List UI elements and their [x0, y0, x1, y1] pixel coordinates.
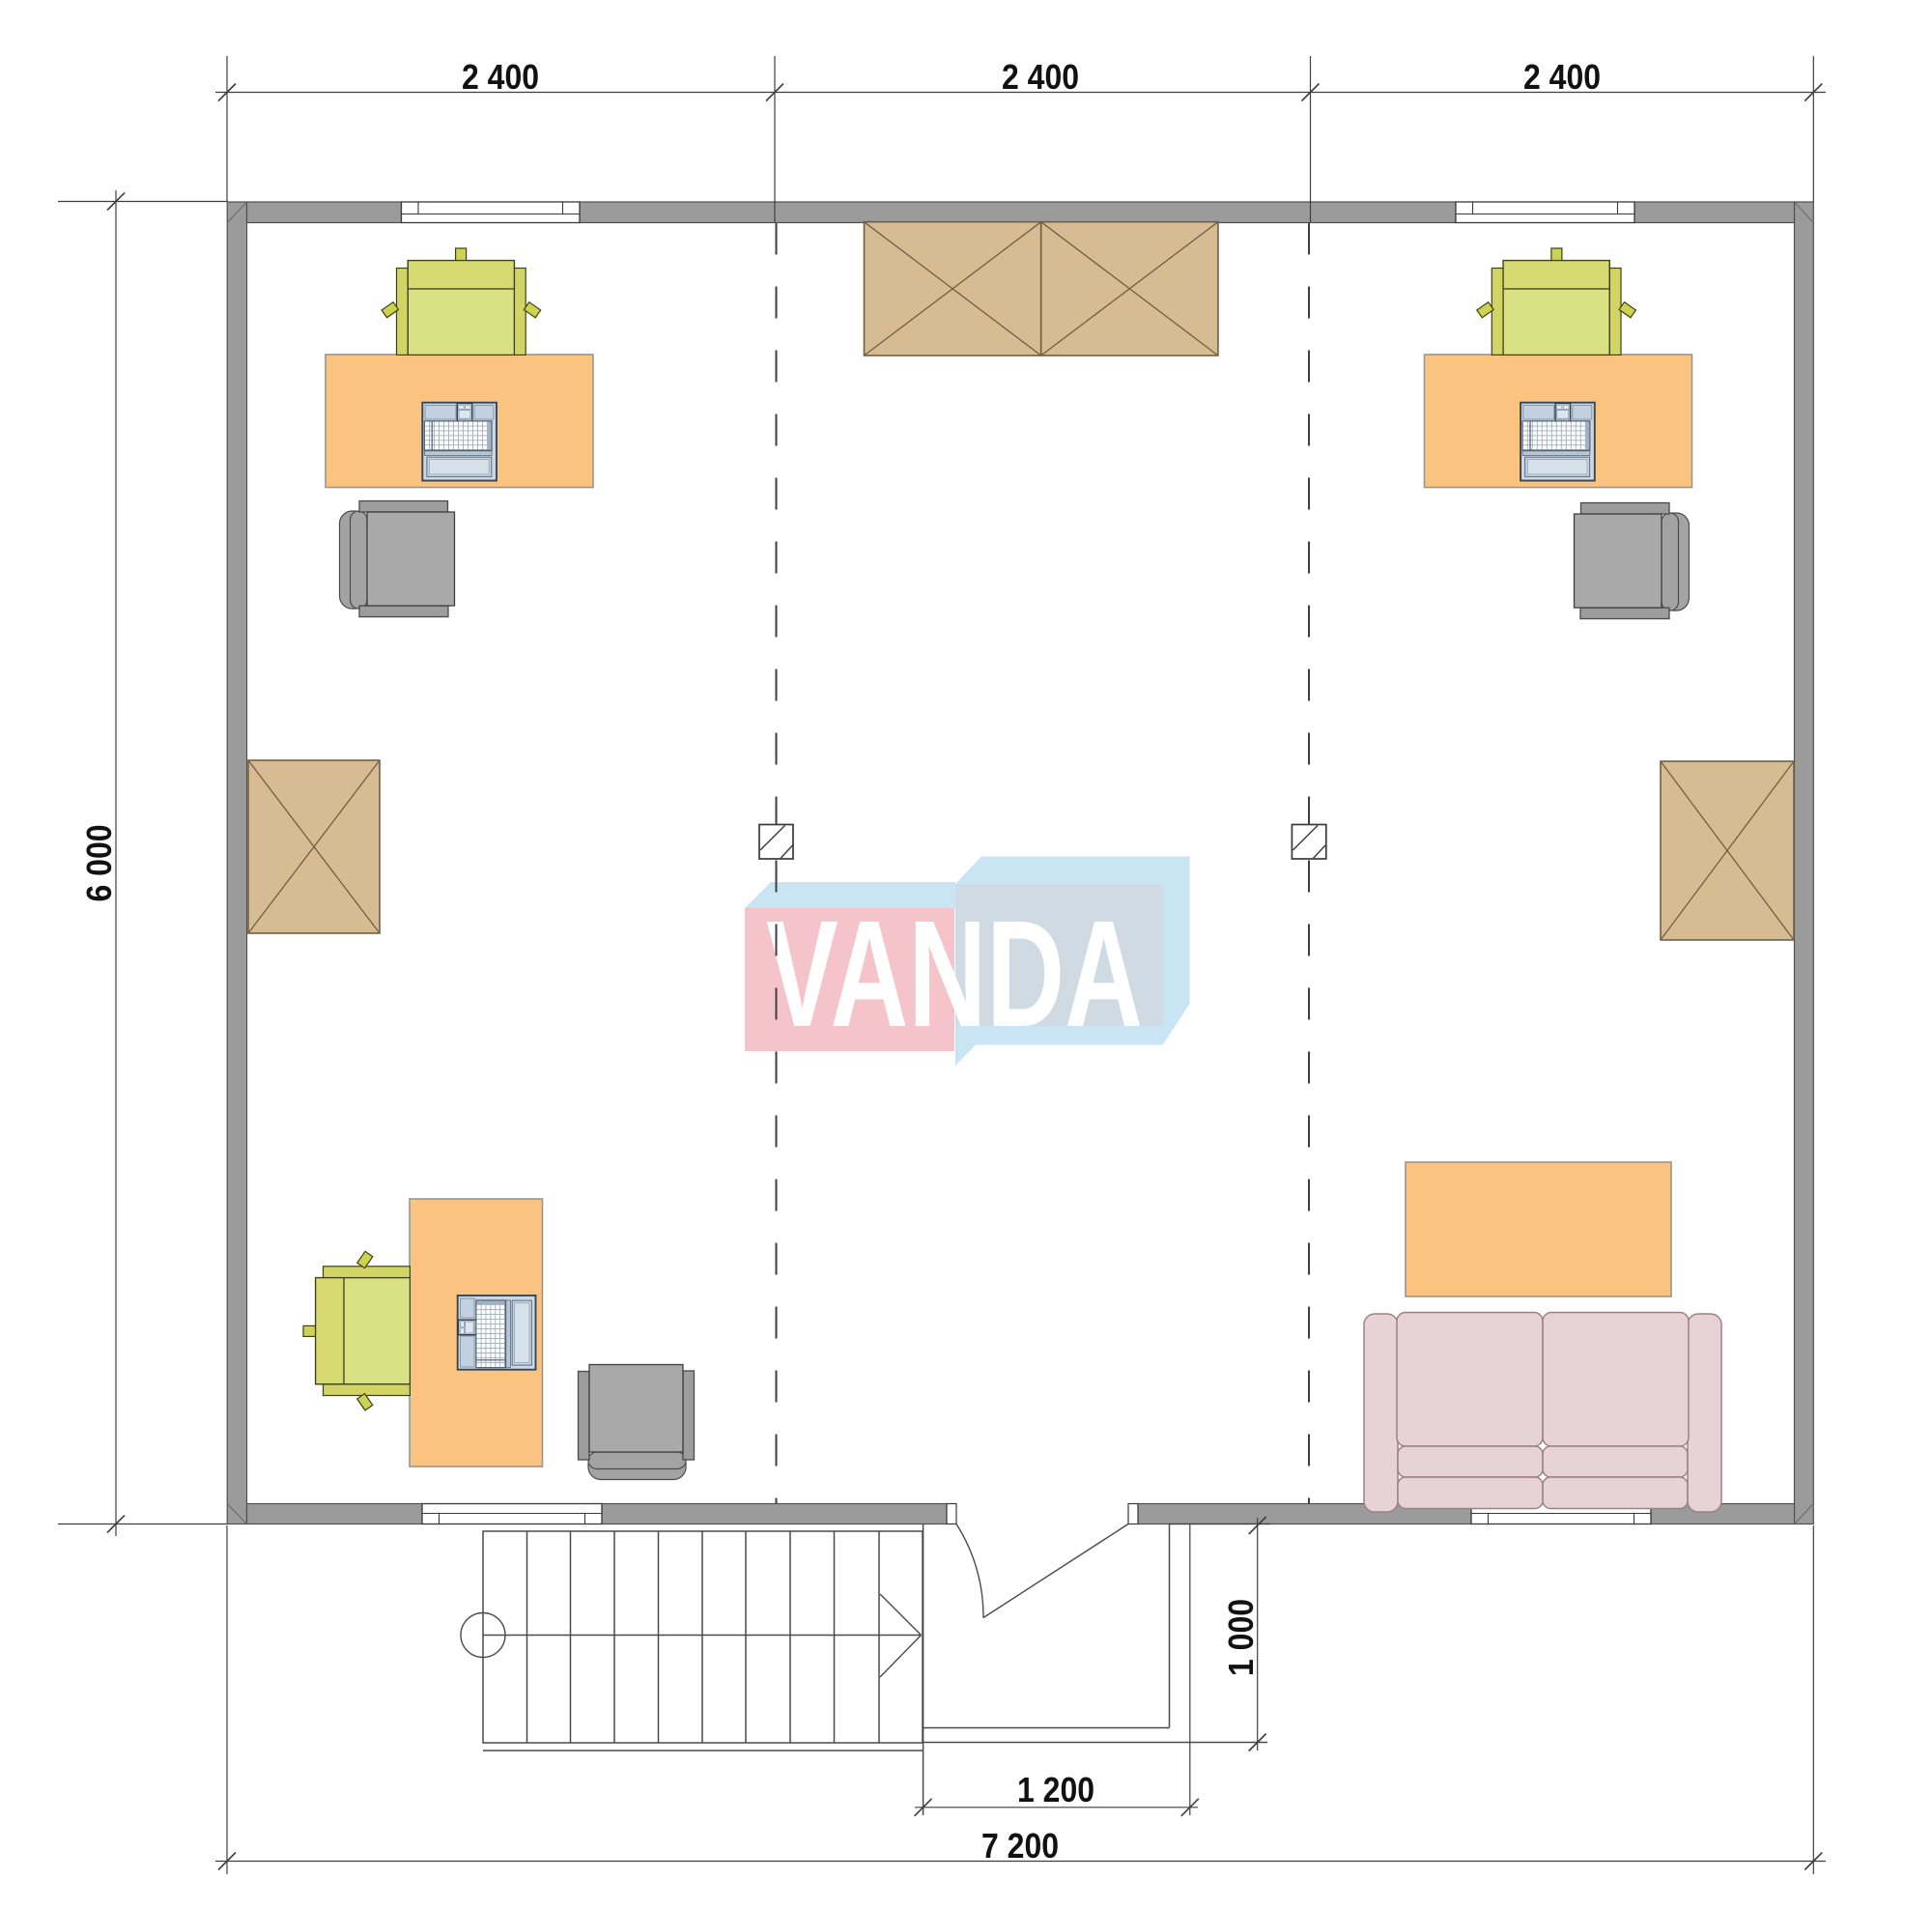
svg-text:VANDA: VANDA: [766, 890, 1143, 1059]
svg-text:2 400: 2 400: [1523, 57, 1601, 97]
svg-text:1 000: 1 000: [1221, 1599, 1261, 1676]
svg-text:7 200: 7 200: [981, 1826, 1059, 1865]
svg-text:2 400: 2 400: [462, 57, 539, 97]
svg-text:6 000: 6 000: [79, 825, 119, 902]
svg-text:2 400: 2 400: [1002, 57, 1079, 97]
svg-text:1 200: 1 200: [1017, 1770, 1094, 1809]
